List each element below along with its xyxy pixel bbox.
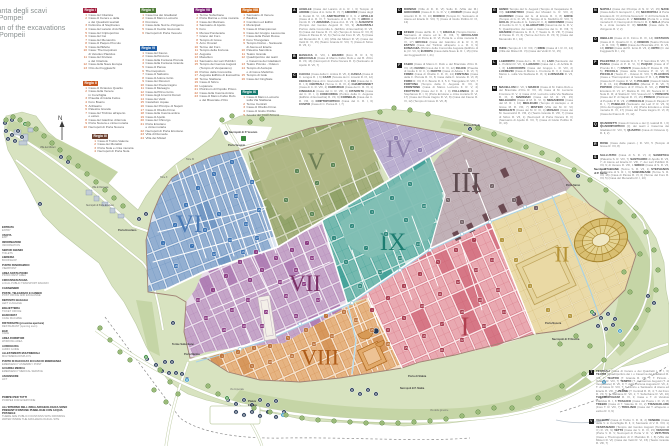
svg-text:18: 18 <box>174 264 178 268</box>
svg-text:Necropoli di P. Nocera: Necropoli di P. Nocera <box>552 337 580 341</box>
svg-text:Piazza: Piazza <box>248 399 256 403</box>
svg-text:13: 13 <box>230 308 234 312</box>
svg-text:I: I <box>461 311 470 341</box>
svg-text:23: 23 <box>204 316 208 320</box>
svg-text:VIII: VIII <box>301 345 339 370</box>
svg-text:Via Imperiale: Via Imperiale <box>230 388 245 391</box>
svg-text:14: 14 <box>246 298 250 302</box>
svg-text:10: 10 <box>268 360 272 364</box>
svg-text:15: 15 <box>370 328 374 332</box>
svg-text:V: V <box>307 149 325 175</box>
svg-text:16: 16 <box>422 334 426 338</box>
svg-text:10: 10 <box>234 194 238 198</box>
svg-text:12: 12 <box>212 252 216 256</box>
svg-text:10: 10 <box>420 304 424 308</box>
svg-text:16: 16 <box>241 250 245 254</box>
svg-text:11: 11 <box>359 284 362 288</box>
svg-text:12: 12 <box>378 270 382 274</box>
svg-text:16: 16 <box>284 294 288 298</box>
svg-text:21: 21 <box>440 348 444 352</box>
svg-text:Porta Nocera: Porta Nocera <box>545 321 562 325</box>
svg-text:14: 14 <box>416 242 420 246</box>
svg-text:15: 15 <box>264 310 268 314</box>
svg-text:13: 13 <box>228 238 232 242</box>
svg-text:Necropoli di Porta Ercolano: Necropoli di Porta Ercolano <box>86 204 115 207</box>
svg-text:II: II <box>555 242 570 267</box>
svg-text:Necropoli di P. Vesuvio: Necropoli di P. Vesuvio <box>229 130 258 134</box>
svg-text:Torre X: Torre X <box>160 176 168 179</box>
svg-text:16: 16 <box>386 342 390 346</box>
svg-text:Villa dei Misteri: Villa dei Misteri <box>40 146 56 149</box>
svg-text:22: 22 <box>460 338 464 342</box>
svg-text:22: 22 <box>316 298 320 302</box>
svg-text:Porta Vesuvio: Porta Vesuvio <box>228 143 246 147</box>
svg-text:Via delle ginestre: Via delle ginestre <box>430 409 449 412</box>
svg-text:17: 17 <box>255 236 259 240</box>
svg-text:11: 11 <box>291 354 294 358</box>
svg-text:13: 13 <box>398 256 402 260</box>
svg-text:N: N <box>58 116 62 122</box>
svg-text:17: 17 <box>440 322 444 326</box>
svg-text:13: 13 <box>474 268 478 272</box>
svg-text:12: 12 <box>456 280 460 284</box>
svg-text:Necropoli di P. Stabia: Necropoli di P. Stabia <box>400 387 425 390</box>
svg-text:10: 10 <box>422 204 426 208</box>
svg-text:Torre XI: Torre XI <box>186 158 194 161</box>
svg-text:11: 11 <box>251 180 254 184</box>
svg-text:20: 20 <box>260 324 264 328</box>
svg-text:III: III <box>452 167 481 199</box>
svg-text:Porta di Nola: Porta di Nola <box>464 123 481 127</box>
svg-text:Porta Ercolano: Porta Ercolano <box>118 228 137 232</box>
svg-text:23: 23 <box>482 324 486 328</box>
svg-text:15: 15 <box>404 346 408 350</box>
svg-text:Terme Suburbane: Terme Suburbane <box>172 342 194 346</box>
svg-text:24: 24 <box>196 298 200 302</box>
svg-text:Porta Marina: Porta Marina <box>184 352 200 356</box>
svg-text:20: 20 <box>496 288 500 292</box>
svg-text:IV: IV <box>386 136 412 163</box>
svg-text:19: 19 <box>242 324 246 328</box>
svg-text:12: 12 <box>312 342 316 346</box>
svg-text:19: 19 <box>478 298 482 302</box>
svg-text:11: 11 <box>295 268 298 272</box>
svg-text:24: 24 <box>502 310 506 314</box>
svg-text:13: 13 <box>330 334 334 338</box>
svg-text:17: 17 <box>302 282 306 286</box>
svg-text:Esedra: Esedra <box>248 403 257 407</box>
svg-text:12: 12 <box>310 256 314 260</box>
svg-text:Porta di Stabia: Porta di Stabia <box>408 374 427 378</box>
svg-text:14: 14 <box>354 318 358 322</box>
svg-text:15: 15 <box>257 208 261 212</box>
svg-text:11: 11 <box>439 292 442 296</box>
svg-text:18: 18 <box>222 328 226 332</box>
svg-text:14: 14 <box>490 258 494 262</box>
svg-text:VI: VI <box>176 211 202 238</box>
svg-text:21: 21 <box>294 314 298 318</box>
svg-text:Porta Sarno: Porta Sarno <box>566 184 581 187</box>
svg-text:14: 14 <box>244 222 248 226</box>
svg-text:Villa di Diomede: Villa di Diomede <box>92 187 109 189</box>
svg-text:18: 18 <box>460 310 464 314</box>
svg-text:10: 10 <box>278 280 282 284</box>
